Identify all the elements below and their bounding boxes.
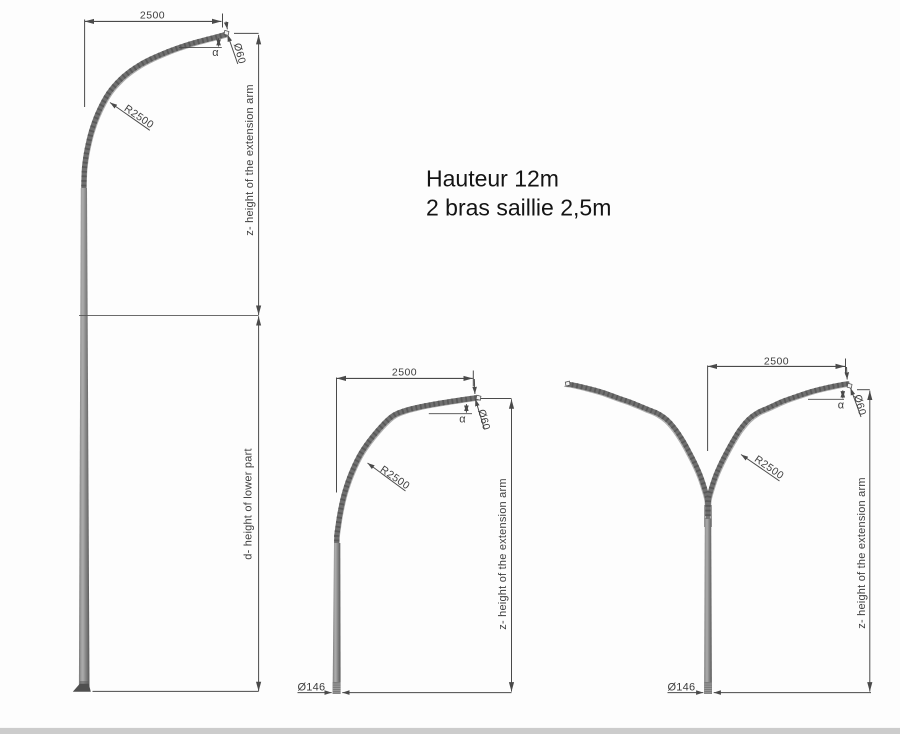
svg-text:Ø146: Ø146: [298, 681, 326, 693]
svg-text:Ø146: Ø146: [668, 681, 696, 693]
svg-text:2 bras saillie 2,5m: 2 bras saillie 2,5m: [426, 195, 611, 221]
svg-text:d- height of lower part: d- height of lower part: [242, 448, 254, 559]
svg-text:Hauteur 12m: Hauteur 12m: [426, 166, 559, 192]
svg-text:z- height of the extension arm: z- height of the extension arm: [497, 478, 509, 630]
svg-text:α: α: [459, 413, 466, 425]
svg-text:z- height of the extension arm: z- height of the extension arm: [244, 84, 256, 236]
svg-text:α: α: [212, 47, 219, 59]
svg-text:α: α: [838, 400, 845, 412]
svg-text:2500: 2500: [764, 356, 789, 368]
svg-text:z- height of the extension arm: z- height of the extension arm: [856, 477, 868, 629]
svg-text:2500: 2500: [392, 366, 417, 378]
svg-text:2500: 2500: [140, 9, 165, 21]
